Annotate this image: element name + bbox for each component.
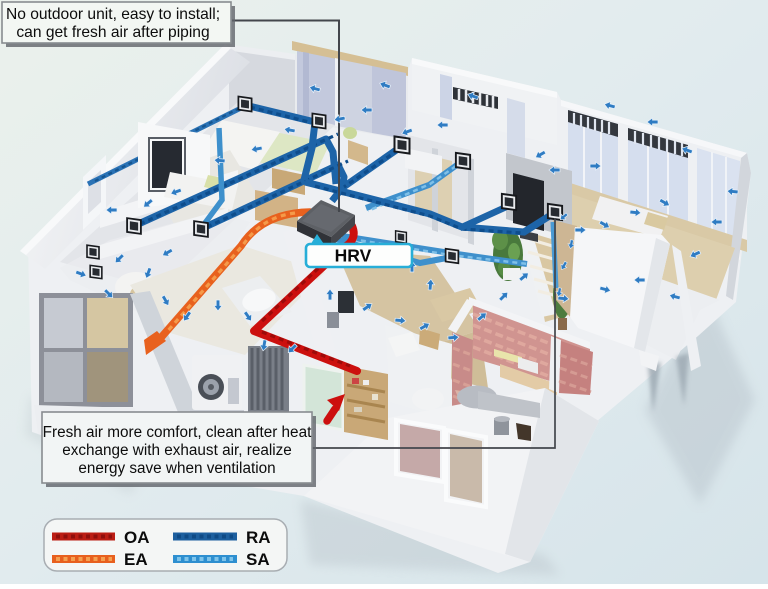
svg-text:RA: RA [246, 528, 271, 547]
svg-text:EA: EA [124, 550, 148, 569]
svg-text:SA: SA [246, 550, 270, 569]
svg-text:Fresh air more comfort, clean: Fresh air more comfort, clean after heat [43, 424, 312, 441]
svg-text:OA: OA [124, 528, 150, 547]
svg-text:No outdoor unit, easy to insta: No outdoor unit, easy to install; [6, 6, 220, 23]
svg-text:HRV: HRV [335, 246, 372, 266]
svg-text:can get fresh air after piping: can get fresh air after piping [16, 24, 209, 41]
svg-text:energy save when ventilation: energy save when ventilation [78, 460, 275, 477]
svg-text:exchange with exhaust air, rea: exchange with exhaust air, realize [62, 442, 292, 459]
